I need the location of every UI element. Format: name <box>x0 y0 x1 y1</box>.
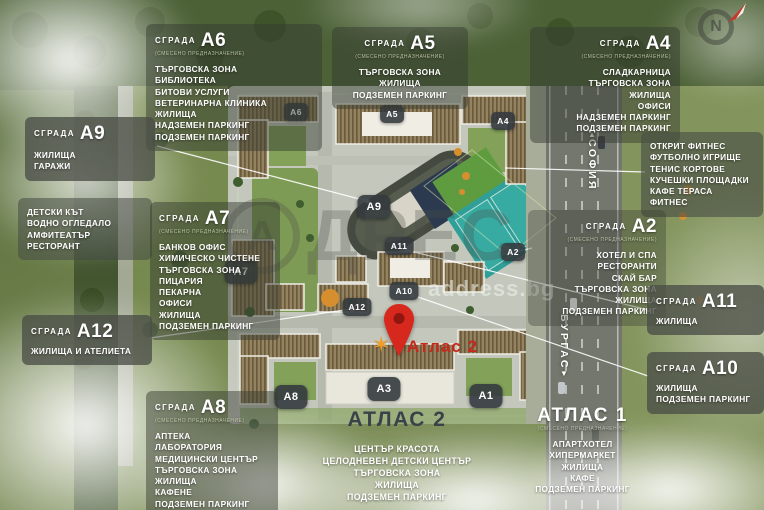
callout-line: ЖИЛИЩА <box>537 295 657 306</box>
callout-items: ЦЕНТЪР КРАСОТАЦЕЛОДНЕВЕН ДЕТСКИ ЦЕНТЪРТЪ… <box>321 444 473 504</box>
callout-title: СГРАДА А7 <box>159 209 271 228</box>
callout-line: ТЕНИС КОРТОВЕ <box>650 164 754 175</box>
callout-line: СКАЙ БАР <box>537 273 657 284</box>
site-plan-poster: А6 А5 А4 А9 А11 А2 А7 А12 А10 А8 А3 А1 ✶… <box>0 0 764 510</box>
callout-line: НАДЗЕМЕН ПАРКИНГ <box>155 120 313 131</box>
callout-subtitle: (СМЕСЕНО ПРЕДНАЗНАЧЕНИЕ) <box>159 229 271 235</box>
callout-subtitle: (СМЕСЕНО ПРЕДНАЗНАЧЕНИЕ) <box>537 237 657 243</box>
callout-subtitle: (СМЕСЕНО ПРЕДНАЗНАЧЕНИЕ) <box>509 426 656 432</box>
callout-line: ЖИЛИЩА <box>656 383 755 394</box>
callout-line: ЖИЛИЩА <box>34 150 146 161</box>
building-prefix: СГРАДА <box>159 214 200 223</box>
callout-subtitle: (СМЕСЕНО ПРЕДНАЗНАЧЕНИЕ) <box>321 431 473 437</box>
callout-line: НАДЗЕМЕН ПАРКИНГ <box>539 112 671 123</box>
callout-line: ОФИСИ <box>539 101 671 112</box>
callout-items: ДЕТСКИ КЪТВОДНО ОГЛЕДАЛОАМФИТЕАТЪРРЕСТОР… <box>27 207 143 252</box>
callout-items: ХОТЕЛ И СПАРЕСТОРАНТИСКАЙ БАРТЪРГОВСКА З… <box>537 250 657 318</box>
callout-line: ТЪРГОВСКА ЗОНА <box>537 284 657 295</box>
project-name-label: Атлас 2 <box>407 337 478 357</box>
atlas1-title: АТЛАС 1 <box>509 406 656 425</box>
callout-title: СГРАДА А9 <box>34 124 146 143</box>
callout-line: ПОДЗЕМЕН ПАРКИНГ <box>321 492 473 504</box>
map-marker-a10: А10 <box>389 282 418 300</box>
callout-line: РЕСТОРАНТ <box>27 241 143 252</box>
callout-subtitle: (СМЕСЕНО ПРЕДНАЗНАЧЕНИЕ) <box>341 54 459 60</box>
callout-line: ЖИЛИЩА <box>155 109 313 120</box>
callout-title: СГРАДА А8 <box>155 398 269 417</box>
map-marker-a8: А8 <box>274 385 307 409</box>
callout-line: ТЪРГОВСКА ЗОНА <box>155 64 313 75</box>
callout-title: СГРАДА А2 <box>537 217 657 236</box>
callout-line: ЖИЛИЩА <box>321 480 473 492</box>
callout-line: ПОДЗЕМЕН ПАРКИНГ <box>656 394 755 405</box>
callout-line: КУЧЕШКИ ПЛОЩАДКИ <box>650 175 754 186</box>
callout-building-a6: СГРАДА А6 (СМЕСЕНО ПРЕДНАЗНАЧЕНИЕ) ТЪРГО… <box>146 24 322 151</box>
callout-line: ЛАБОРАТОРИЯ <box>155 442 269 453</box>
building-prefix: СГРАДА <box>31 327 72 336</box>
callout-building-a2: СГРАДА А2 (СМЕСЕНО ПРЕДНАЗНАЧЕНИЕ) ХОТЕЛ… <box>528 210 666 326</box>
callout-building-a5: СГРАДА А5 (СМЕСЕНО ПРЕДНАЗНАЧЕНИЕ) ТЪРГО… <box>332 27 468 109</box>
building-code: А2 <box>632 217 657 236</box>
building-prefix: СГРАДА <box>600 39 641 48</box>
callout-line: РЕСТОРАНТИ <box>537 261 657 272</box>
callout-building-a11: СГРАДА А11 ЖИЛИЩА <box>647 285 764 335</box>
map-marker-a4: А4 <box>491 112 515 130</box>
callout-line: ГАРАЖИ <box>34 161 146 172</box>
callout-line: ЖИЛИЩА <box>509 462 656 473</box>
callout-line: ЦЕЛОДНЕВЕН ДЕТСКИ ЦЕНТЪР <box>321 456 473 468</box>
callout-line: ЖИЛИЩА <box>159 310 271 321</box>
callout-line: ПОДЗЕМЕН ПАРКИНГ <box>155 132 313 143</box>
callout-items: АПТЕКАЛАБОРАТОРИЯМЕДИЦИНСКИ ЦЕНТЪРТЪРГОВ… <box>155 431 269 510</box>
callout-line: ПЕКАРНА <box>159 287 271 298</box>
callout-line: БАНКОВ ОФИС <box>159 242 271 253</box>
building-prefix: СГРАДА <box>155 36 196 45</box>
callout-line: ТЪРГОВСКА ЗОНА <box>341 67 459 78</box>
building-code: А7 <box>205 209 230 228</box>
callout-line: ПОДЗЕМЕН ПАРКИНГ <box>159 321 271 332</box>
callout-items: ЖИЛИЩАГАРАЖИ <box>34 150 146 173</box>
callout-line: ОТКРИТ ФИТНЕС <box>650 141 754 152</box>
callout-line: ПОДЗЕМЕН ПАРКИНГ <box>509 484 656 495</box>
callout-items: ОТКРИТ ФИТНЕСФУТБОЛНО ИГРИЩЕТЕНИС КОРТОВ… <box>650 141 754 209</box>
callout-title: СГРАДА А12 <box>31 322 143 341</box>
callout-line: АПТЕКА <box>155 431 269 442</box>
callout-line: ЖИЛИЩА <box>656 316 755 327</box>
road-direction-text: СОФИЯ <box>586 139 598 191</box>
callout-title: СГРАДА А10 <box>656 359 755 378</box>
callout-line: ПОДЗЕМЕН ПАРКИНГ <box>537 306 657 317</box>
map-marker-a3: А3 <box>367 377 400 401</box>
callout-line: ОФИСИ <box>159 298 271 309</box>
callout-items: АПАРТХОТЕЛХИПЕРМАРКЕТЖИЛИЩАКАФЕПОДЗЕМЕН … <box>509 439 656 495</box>
callout-building-a8: СГРАДА А8 (СМЕСЕНО ПРЕДНАЗНАЧЕНИЕ) АПТЕК… <box>146 391 278 510</box>
building-code: А5 <box>410 34 435 53</box>
callout-line: ЖИЛИЩА <box>155 476 269 487</box>
callout-amenities-right: ОТКРИТ ФИТНЕСФУТБОЛНО ИГРИЩЕТЕНИС КОРТОВ… <box>641 132 763 217</box>
callout-line: ТЪРГОВСКА ЗОНА <box>159 265 271 276</box>
callout-line: ЖИЛИЩА <box>341 78 459 89</box>
callout-line: ХИПЕРМАРКЕТ <box>509 450 656 461</box>
callout-line: СЛАДКАРНИЦА <box>539 67 671 78</box>
callout-items: СЛАДКАРНИЦАТЪРГОВСКА ЗОНАЖИЛИЩАОФИСИНАДЗ… <box>539 67 671 135</box>
callout-subtitle: (СМЕСЕНО ПРЕДНАЗНАЧЕНИЕ) <box>155 418 269 424</box>
building-prefix: СГРАДА <box>586 222 627 231</box>
callout-items: ТЪРГОВСКА ЗОНАЖИЛИЩАПОДЗЕМЕН ПАРКИНГ <box>341 67 459 101</box>
callout-items: ЖИЛИЩА <box>656 316 755 327</box>
callout-line: ФИТНЕС <box>650 197 754 208</box>
callout-line: БИТОВИ УСЛУГИ <box>155 87 313 98</box>
callout-title: СГРАДА А5 <box>341 34 459 53</box>
callout-building-a7: СГРАДА А7 (СМЕСЕНО ПРЕДНАЗНАЧЕНИЕ) БАНКО… <box>150 202 280 340</box>
callout-line: ТЪРГОВСКА ЗОНА <box>539 78 671 89</box>
building-prefix: СГРАДА <box>34 129 75 138</box>
callout-line: ЦЕНТЪР КРАСОТА <box>321 444 473 456</box>
callout-atlas-1: АТЛАС 1 (СМЕСЕНО ПРЕДНАЗНАЧЕНИЕ) АПАРТХО… <box>500 399 665 503</box>
callout-line: ЖИЛИЩА <box>539 90 671 101</box>
callout-building-a4: СГРАДА А4 (СМЕСЕНО ПРЕДНАЗНАЧЕНИЕ) СЛАДК… <box>530 27 680 143</box>
callout-line: ХИМИЧЕСКО ЧИСТЕНЕ <box>159 253 271 264</box>
building-code: А9 <box>80 124 105 143</box>
map-marker-a9: А9 <box>357 195 390 219</box>
building-prefix: СГРАДА <box>656 364 697 373</box>
callout-line: ФУТБОЛНО ИГРИЩЕ <box>650 152 754 163</box>
callout-line: ПОДЗЕМЕН ПАРКИНГ <box>155 499 269 510</box>
building-code: А11 <box>702 292 737 311</box>
callout-line: ХОТЕЛ И СПА <box>537 250 657 261</box>
callout-building-a9: СГРАДА А9 ЖИЛИЩАГАРАЖИ <box>25 117 155 181</box>
callout-atlas-2: АТЛАС 2 (СМЕСЕНО ПРЕДНАЗНАЧЕНИЕ) ЦЕНТЪР … <box>312 402 482 510</box>
callout-items: ТЪРГОВСКА ЗОНАБИБЛИОТЕКАБИТОВИ УСЛУГИВЕТ… <box>155 64 313 143</box>
callout-line: ДЕТСКИ КЪТ <box>27 207 143 218</box>
callout-subtitle: (СМЕСЕНО ПРЕДНАЗНАЧЕНИЕ) <box>539 54 671 60</box>
callout-line: ТЪРГОВСКА ЗОНА <box>155 465 269 476</box>
callout-title: СГРАДА А4 <box>539 34 671 53</box>
callout-title: СГРАДА А11 <box>656 292 755 311</box>
building-prefix: СГРАДА <box>364 39 405 48</box>
callout-building-a12: СГРАДА А12 ЖИЛИЩА И АТЕЛИЕТА <box>22 315 152 365</box>
callout-line: АМФИТЕАТЪР <box>27 230 143 241</box>
callout-line: БИБЛИОТЕКА <box>155 75 313 86</box>
atlas2-title: АТЛАС 2 <box>321 409 473 430</box>
callout-items: ЖИЛИЩА И АТЕЛИЕТА <box>31 346 143 357</box>
callout-line: АПАРТХОТЕЛ <box>509 439 656 450</box>
callout-items: БАНКОВ ОФИСХИМИЧЕСКО ЧИСТЕНЕТЪРГОВСКА ЗО… <box>159 242 271 332</box>
building-prefix: СГРАДА <box>656 297 697 306</box>
callout-line: ВЕТЕРИНАРНА КЛИНИКА <box>155 98 313 109</box>
callout-title: СГРАДА А6 <box>155 31 313 50</box>
callout-line: ЖИЛИЩА И АТЕЛИЕТА <box>31 346 143 357</box>
building-code: А4 <box>646 34 671 53</box>
building-code: А10 <box>702 359 738 378</box>
callout-line: ПИЦАРИЯ <box>159 276 271 287</box>
map-marker-a2: А2 <box>501 243 525 261</box>
callout-line: МЕДИЦИНСКИ ЦЕНТЪР <box>155 454 269 465</box>
building-prefix: СГРАДА <box>155 403 196 412</box>
callout-line: КАФЕНЕ <box>155 487 269 498</box>
callout-subtitle: (СМЕСЕНО ПРЕДНАЗНАЧЕНИЕ) <box>155 51 313 57</box>
callout-items: ЖИЛИЩАПОДЗЕМЕН ПАРКИНГ <box>656 383 755 406</box>
map-marker-a12: А12 <box>342 298 371 316</box>
arrow-down-icon: ▼ <box>560 370 568 378</box>
callout-line: КАФЕ <box>509 473 656 484</box>
building-code: А8 <box>201 398 226 417</box>
callout-line: ПОДЗЕМЕН ПАРКИНГ <box>341 90 459 101</box>
building-code: А6 <box>201 31 226 50</box>
map-marker-a11: А11 <box>385 237 414 255</box>
callout-line: КАФЕ ТЕРАСА <box>650 186 754 197</box>
building-code: А12 <box>77 322 113 341</box>
compass-arrow-icon <box>722 1 748 25</box>
callout-line: ТЪРГОВСКА ЗОНА <box>321 468 473 480</box>
compass-letter: N <box>710 18 722 36</box>
callout-line: ВОДНО ОГЛЕДАЛО <box>27 218 143 229</box>
callout-amenities-left: ДЕТСКИ КЪТВОДНО ОГЛЕДАЛОАМФИТЕАТЪРРЕСТОР… <box>18 198 152 260</box>
